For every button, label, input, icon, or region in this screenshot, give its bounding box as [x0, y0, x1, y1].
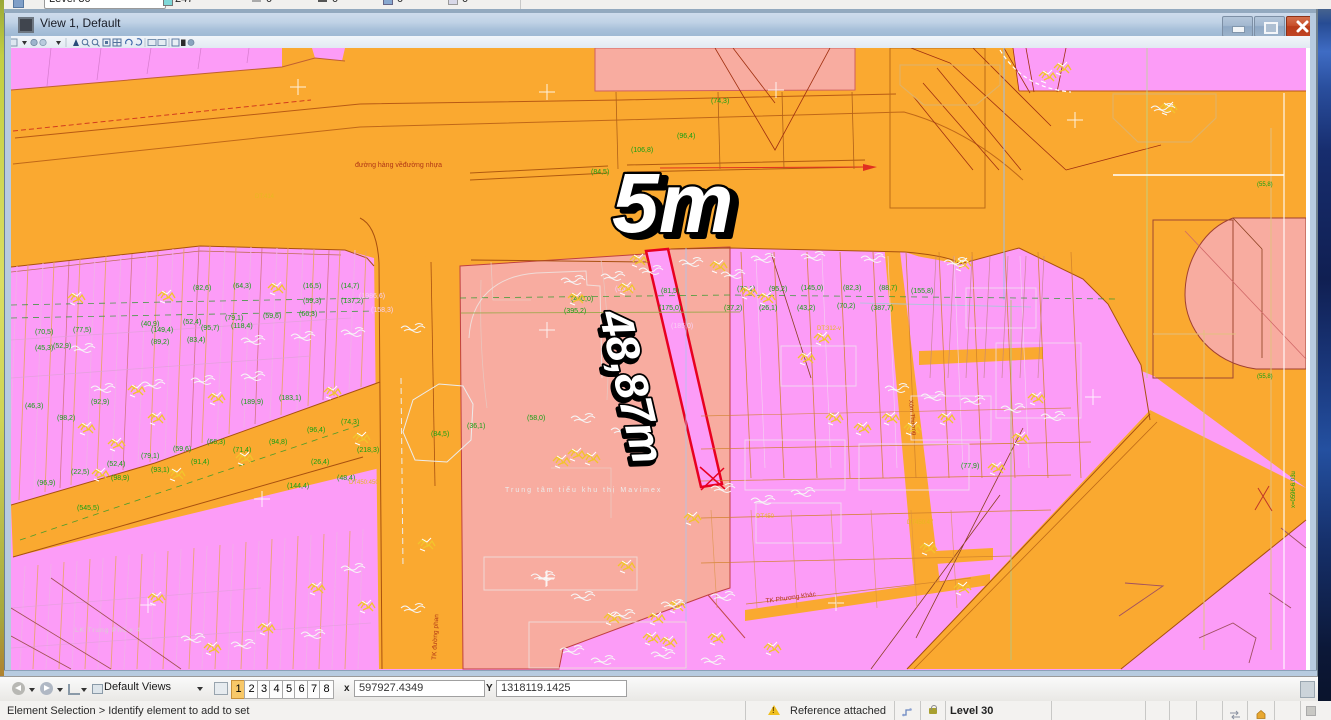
svg-text:(59,6): (59,6) — [263, 313, 281, 320]
svg-text:đường hàng vềđường nhựa: đường hàng vềđường nhựa — [355, 160, 442, 169]
svg-text:(66,3): (66,3) — [207, 439, 225, 446]
svg-text:(145,0): (145,0) — [801, 285, 823, 292]
svg-text:(84,5): (84,5) — [431, 431, 449, 438]
svg-text:(387,7): (387,7) — [871, 305, 893, 312]
svg-text:(96,9): (96,9) — [37, 480, 55, 487]
svg-text:(52,4): (52,4) — [183, 319, 201, 326]
svg-text:(26,1): (26,1) — [759, 305, 777, 312]
svg-text:(94,8): (94,8) — [269, 439, 287, 446]
svg-text:(218,3): (218,3) — [357, 447, 379, 454]
svg-text:(98,9): (98,9) — [111, 475, 129, 482]
svg-text:DT450:450: DT450:450 — [349, 480, 379, 486]
svg-text:(149,4): (149,4) — [151, 327, 173, 334]
svg-text:(77,5): (77,5) — [73, 327, 91, 334]
svg-text:(93,1): (93,1) — [151, 467, 169, 474]
svg-text:(77,9): (77,9) — [961, 463, 979, 470]
svg-text:(98,2): (98,2) — [57, 415, 75, 422]
svg-text:(36,1): (36,1) — [467, 423, 485, 430]
svg-text:(395,2): (395,2) — [564, 308, 586, 315]
svg-text:(88,7): (88,7) — [879, 285, 897, 292]
svg-text:x=0596-6.03u: x=0596-6.03u — [1291, 471, 1297, 508]
svg-text:DT:414: DT:414 — [255, 194, 275, 200]
svg-text:(189,9): (189,9) — [241, 399, 263, 406]
svg-text:(59,6): (59,6) — [173, 446, 191, 453]
svg-text:(14,7): (14,7) — [341, 283, 359, 290]
svg-text:(74,3): (74,3) — [711, 98, 729, 105]
svg-text:(92,9): (92,9) — [91, 399, 109, 406]
svg-text:(95,7): (95,7) — [201, 325, 219, 332]
svg-text:(96,4): (96,4) — [677, 133, 695, 140]
svg-text:(64,3): (64,3) — [233, 283, 251, 290]
svg-text:(52,9): (52,9) — [53, 343, 71, 350]
svg-text:(1986,6): (1986,6) — [359, 293, 385, 300]
svg-text:(74,3): (74,3) — [341, 419, 359, 426]
svg-text:(58,0): (58,0) — [527, 415, 545, 422]
svg-text:(46,3): (46,3) — [25, 403, 43, 410]
svg-text:(43,2): (43,2) — [797, 305, 815, 312]
svg-text:(144,4): (144,4) — [287, 483, 309, 490]
svg-text:(158,3): (158,3) — [371, 307, 393, 314]
svg-text:(118,4): (118,4) — [231, 323, 253, 330]
svg-text:(55,8): (55,8) — [1257, 182, 1273, 188]
svg-text:(106,8): (106,8) — [631, 147, 653, 154]
svg-text:(82,6): (82,6) — [193, 285, 211, 292]
svg-text:(70,5): (70,5) — [35, 329, 53, 336]
svg-text:(185,0): (185,0) — [671, 323, 693, 330]
svg-text:(79,1): (79,1) — [141, 453, 159, 460]
svg-text:(59,3): (59,3) — [303, 298, 321, 305]
svg-text:DT450: DT450 — [756, 514, 775, 520]
svg-text:(45,3): (45,3) — [35, 345, 53, 352]
svg-text:(52,4): (52,4) — [107, 461, 125, 468]
svg-text:(545,5): (545,5) — [77, 505, 99, 512]
svg-text:(22,5): (22,5) — [71, 469, 89, 476]
svg-text:(70,2): (70,2) — [837, 303, 855, 310]
svg-text:(16,5): (16,5) — [303, 283, 321, 290]
svg-text:(183,1): (183,1) — [279, 395, 301, 402]
svg-text:5m: 5m — [612, 156, 733, 250]
svg-text:DT450:47: DT450:47 — [907, 520, 934, 526]
svg-text:(81,5): (81,5) — [661, 288, 679, 295]
svg-text:(83,4): (83,4) — [187, 337, 205, 344]
svg-text:(55,8): (55,8) — [1257, 374, 1273, 380]
svg-text:(82,3): (82,3) — [843, 285, 861, 292]
svg-text:(96,4): (96,4) — [307, 427, 325, 434]
svg-text:Trung tâm tiểu khu thị Mavimex: Trung tâm tiểu khu thị Mavimex — [505, 486, 662, 494]
svg-text:(37,2): (37,2) — [724, 305, 742, 312]
svg-text:(66,3): (66,3) — [299, 311, 317, 318]
svg-text:LK Trung Phố x.4: LK Trung Phố x.4 — [75, 625, 141, 634]
svg-text:(175,0): (175,0) — [659, 305, 681, 312]
svg-text:(95,2): (95,2) — [769, 286, 787, 293]
svg-text:DT:312-v: DT:312-v — [817, 326, 841, 332]
svg-text:(26,4): (26,4) — [311, 459, 329, 466]
svg-text:(91,4): (91,4) — [191, 459, 209, 466]
svg-text:(79,1): (79,1) — [225, 315, 243, 322]
svg-text:(155,8): (155,8) — [911, 288, 933, 295]
svg-text:(89,2): (89,2) — [151, 339, 169, 346]
svg-text:(84,5): (84,5) — [591, 169, 609, 176]
